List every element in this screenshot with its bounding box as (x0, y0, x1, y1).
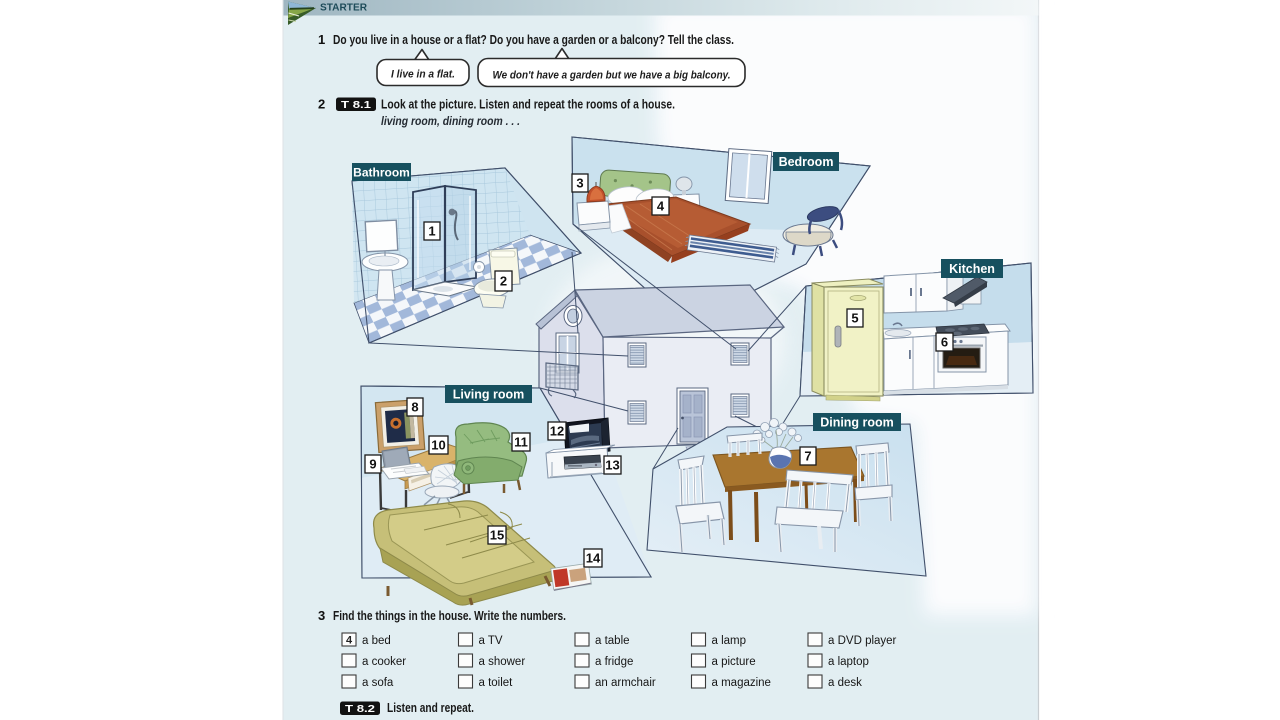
svg-text:3: 3 (576, 176, 583, 191)
svg-text:a TV: a TV (479, 635, 503, 647)
svg-text:a magazine: a magazine (712, 677, 771, 689)
svg-text:a toilet: a toilet (479, 677, 514, 689)
svg-text:2: 2 (500, 274, 507, 289)
svg-text:a bed: a bed (362, 635, 391, 647)
svg-text:a DVD player: a DVD player (828, 635, 897, 647)
svg-text:10: 10 (431, 438, 445, 453)
svg-text:Bathroom: Bathroom (353, 165, 410, 179)
svg-text:T 8.1: T 8.1 (341, 100, 372, 111)
svg-text:12: 12 (550, 424, 564, 439)
svg-text:4: 4 (657, 199, 665, 214)
svg-text:a shower: a shower (479, 656, 526, 668)
svg-text:living room, dining room . . .: living room, dining room . . . (381, 116, 520, 128)
svg-text:a sofa: a sofa (362, 677, 394, 689)
svg-text:T 8.2: T 8.2 (345, 704, 376, 715)
svg-text:6: 6 (941, 335, 948, 350)
svg-text:1: 1 (428, 224, 435, 239)
svg-text:a cooker: a cooker (362, 656, 406, 668)
svg-text:15: 15 (490, 528, 504, 543)
svg-text:a fridge: a fridge (595, 656, 633, 668)
svg-text:a picture: a picture (712, 656, 756, 668)
svg-text:an armchair: an armchair (595, 677, 656, 689)
svg-text:3: 3 (318, 608, 325, 623)
svg-text:Dining room: Dining room (820, 415, 894, 429)
svg-text:5: 5 (851, 311, 858, 326)
svg-text:11: 11 (514, 435, 528, 450)
svg-text:2: 2 (318, 97, 325, 112)
svg-text:Kitchen: Kitchen (949, 262, 995, 276)
svg-text:a lamp: a lamp (712, 635, 747, 647)
svg-text:4: 4 (346, 635, 353, 647)
svg-text:9: 9 (369, 457, 376, 472)
svg-text:8: 8 (411, 400, 418, 415)
svg-text:a table: a table (595, 635, 630, 647)
svg-text:Do you live in a house or a fl: Do you live in a house or a flat? Do you… (333, 33, 734, 47)
svg-text:Find the things in the house.: Find the things in the house. Write the … (333, 609, 566, 623)
svg-text:7: 7 (804, 449, 811, 464)
svg-text:STARTER: STARTER (320, 2, 367, 14)
svg-text:We don't have a garden but we: We don't have a garden but we have a big… (493, 70, 731, 82)
svg-text:Listen and repeat.: Listen and repeat. (387, 701, 474, 715)
svg-text:Look at the picture. Listen an: Look at the picture. Listen and repeat t… (381, 98, 675, 112)
svg-text:13: 13 (605, 458, 619, 473)
svg-text:14: 14 (586, 551, 601, 566)
svg-text:Living room: Living room (453, 387, 525, 401)
svg-text:a desk: a desk (828, 677, 862, 689)
svg-text:Bedroom: Bedroom (779, 155, 834, 169)
svg-text:1: 1 (318, 32, 325, 47)
svg-text:I live in a flat.: I live in a flat. (391, 69, 455, 81)
svg-text:a laptop: a laptop (828, 656, 869, 668)
